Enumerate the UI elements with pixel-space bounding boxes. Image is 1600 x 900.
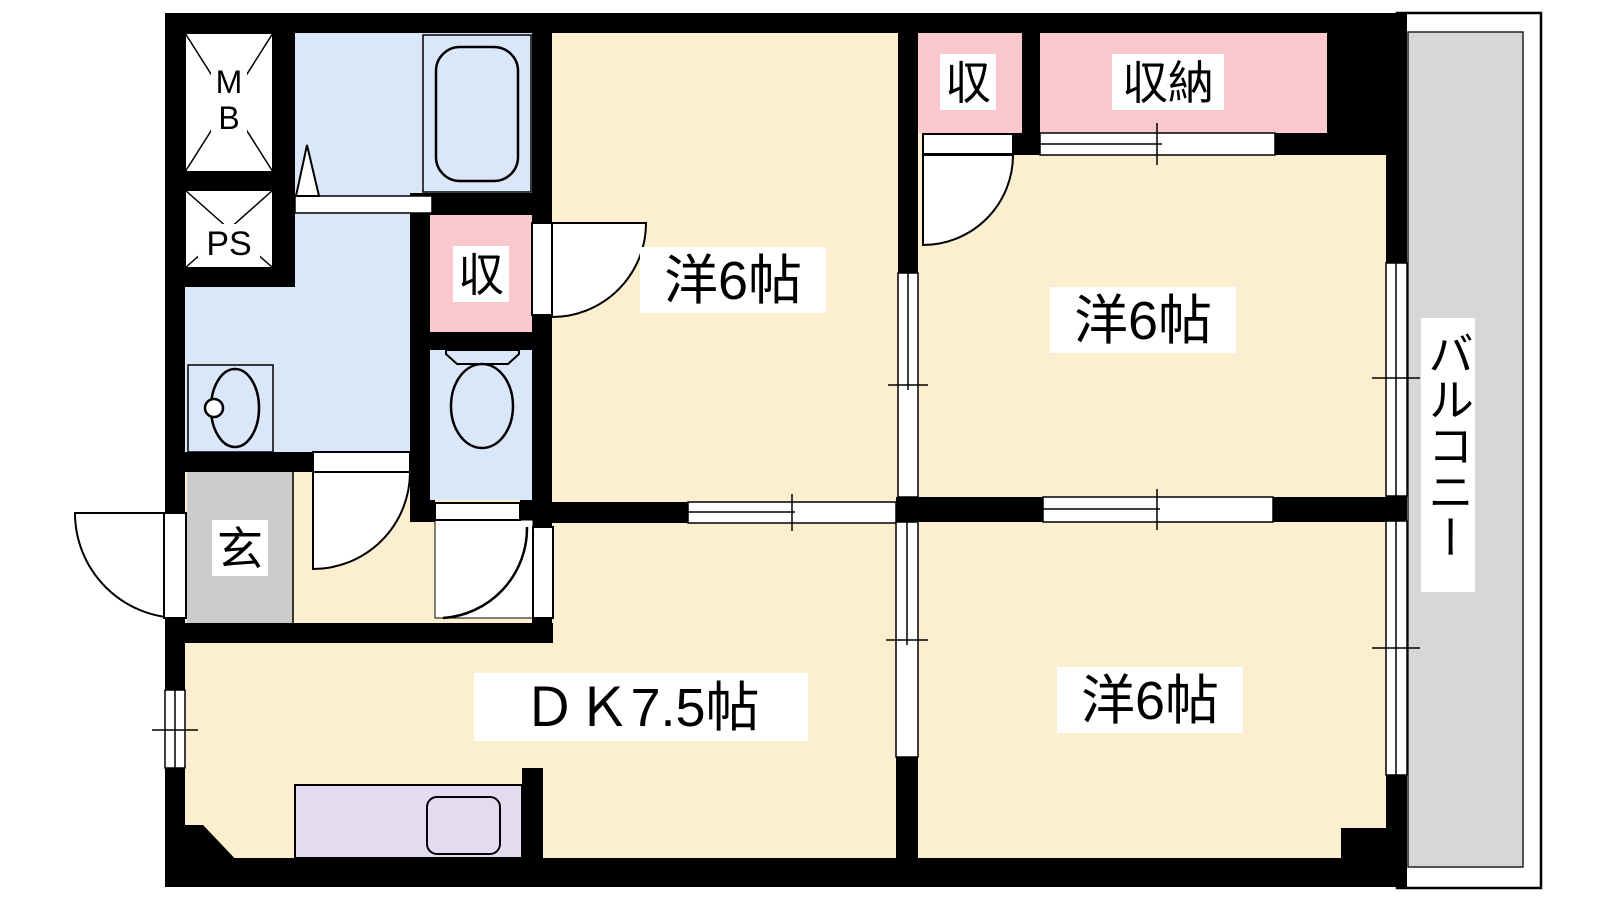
- floorplan-page: MB PS 収 玄 洋6帖 収 収納 洋6帖 洋6帖 ＤＫ7.5帖 バルコニー: [0, 0, 1600, 900]
- label-western-top-right: 洋6帖: [1074, 291, 1212, 351]
- entrance-door-leaf: [164, 513, 186, 618]
- wall-bottom: [165, 858, 1407, 887]
- washroom-door-leaf: [313, 452, 410, 472]
- label-closet-small: 収: [945, 57, 991, 109]
- label-closet-hallway: 収: [458, 249, 504, 301]
- wall-washroom-south: [185, 452, 315, 472]
- meter-box-label: MB: [211, 64, 247, 136]
- service-boxes: MB PS: [185, 33, 273, 268]
- bathroom-door-opening: [295, 196, 432, 213]
- label-dk: ＤＫ7.5帖: [522, 678, 759, 738]
- wall-closet-strip-b: [1275, 133, 1353, 155]
- wall-right-rooms-divider-left: [918, 497, 1043, 522]
- wall-top: [165, 13, 1407, 33]
- label-western-top-center: 洋6帖: [664, 251, 802, 311]
- label-entrance: 玄: [217, 523, 263, 575]
- dk-doorway-leaf: [533, 527, 553, 618]
- wall-toilet-south-right: [520, 500, 533, 522]
- kitchen-counter: [295, 785, 522, 858]
- top-center-room-door-leaf: [532, 223, 552, 315]
- wall-washroom-east: [410, 215, 430, 502]
- closet-small-door-leaf: [923, 134, 1013, 154]
- wall-dk-east-lower: [896, 757, 918, 887]
- washbasin-faucet: [205, 399, 223, 417]
- entrance-door: [75, 513, 186, 618]
- wall-dk-north-left: [532, 502, 688, 523]
- wall-closet-divider: [1022, 33, 1040, 133]
- wall-bath-east-upper: [532, 13, 552, 223]
- wall-bottom-right-notch: [1341, 828, 1393, 858]
- wall-right-rooms-divider-right: [1273, 497, 1393, 522]
- wall-bath-east-lower: [532, 315, 552, 527]
- wall-closet-toilet-divider: [430, 332, 532, 350]
- wall-top-rooms-divider: [898, 13, 918, 273]
- wall-entrance-south: [165, 623, 553, 643]
- label-balcony: バルコニー: [1422, 330, 1474, 560]
- label-closet-large: 収納: [1122, 57, 1214, 109]
- wall-toilet-south-left: [410, 500, 435, 522]
- toilet-room-floor: [430, 350, 532, 500]
- pipe-shaft: PS: [185, 190, 273, 268]
- meter-box: MB: [185, 33, 273, 172]
- pipe-shaft-label: PS: [206, 225, 251, 263]
- wall-closet-strip-a: [1013, 133, 1040, 155]
- floorplan-canvas: MB PS 収 玄 洋6帖 収 収納 洋6帖 洋6帖 ＤＫ7.5帖 バルコニー: [0, 0, 1600, 900]
- toilet-door-leaf: [435, 503, 520, 520]
- label-western-bottom-right: 洋6帖: [1081, 671, 1219, 731]
- wall-kitchen-stub: [522, 768, 543, 858]
